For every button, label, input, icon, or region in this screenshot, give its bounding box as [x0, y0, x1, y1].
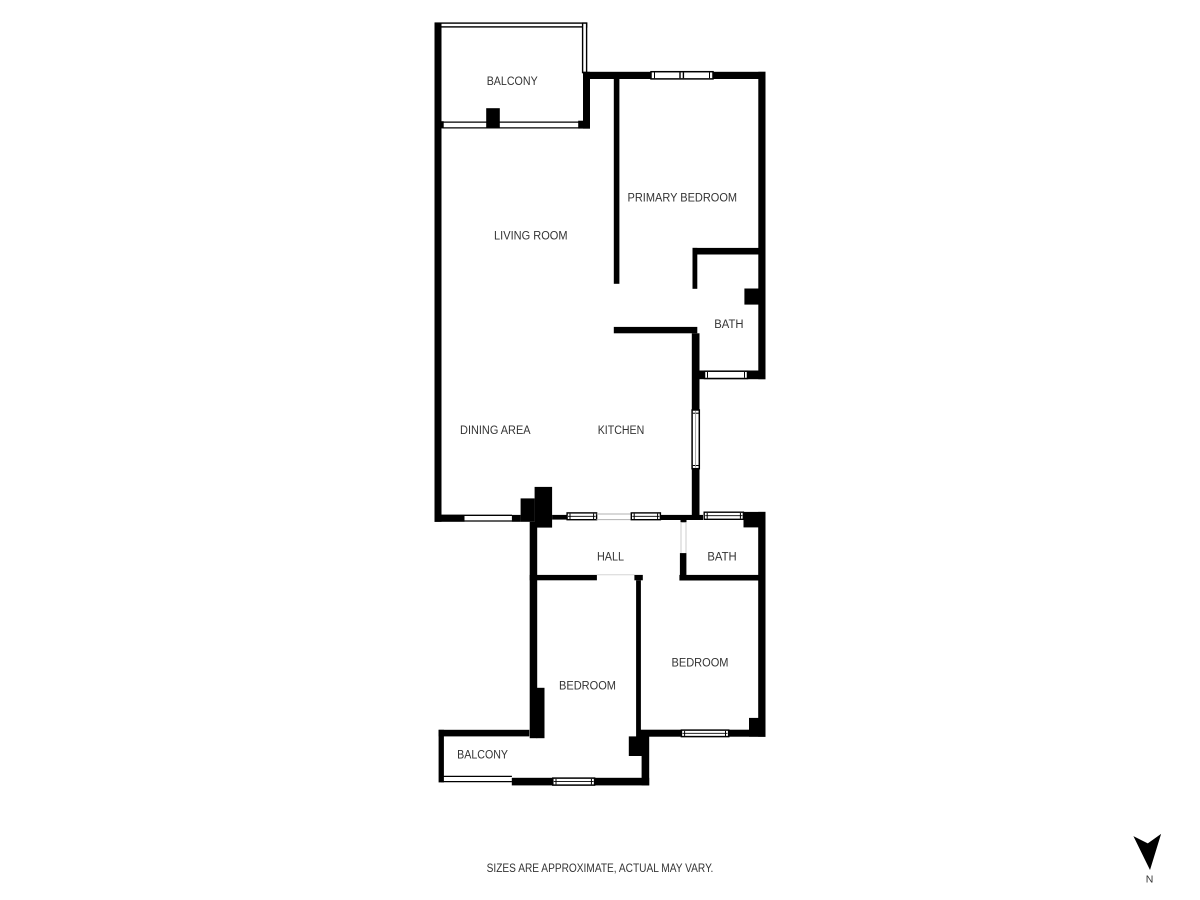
svg-text:BATH: BATH — [714, 319, 743, 331]
svg-text:KITCHEN: KITCHEN — [598, 425, 645, 437]
svg-text:HALL: HALL — [597, 552, 625, 564]
svg-text:SIZES ARE APPROXIMATE, ACTUAL: SIZES ARE APPROXIMATE, ACTUAL MAY VARY. — [487, 863, 714, 875]
svg-text:BEDROOM: BEDROOM — [672, 658, 729, 670]
svg-text:PRIMARY BEDROOM: PRIMARY BEDROOM — [628, 192, 738, 204]
svg-text:BEDROOM: BEDROOM — [559, 681, 616, 693]
svg-text:LIVING ROOM: LIVING ROOM — [494, 231, 568, 243]
svg-text:BATH: BATH — [707, 552, 736, 564]
svg-text:N: N — [1146, 873, 1154, 885]
svg-text:DINING AREA: DINING AREA — [460, 425, 531, 437]
svg-text:BALCONY: BALCONY — [457, 749, 508, 761]
svg-text:BALCONY: BALCONY — [487, 76, 538, 88]
